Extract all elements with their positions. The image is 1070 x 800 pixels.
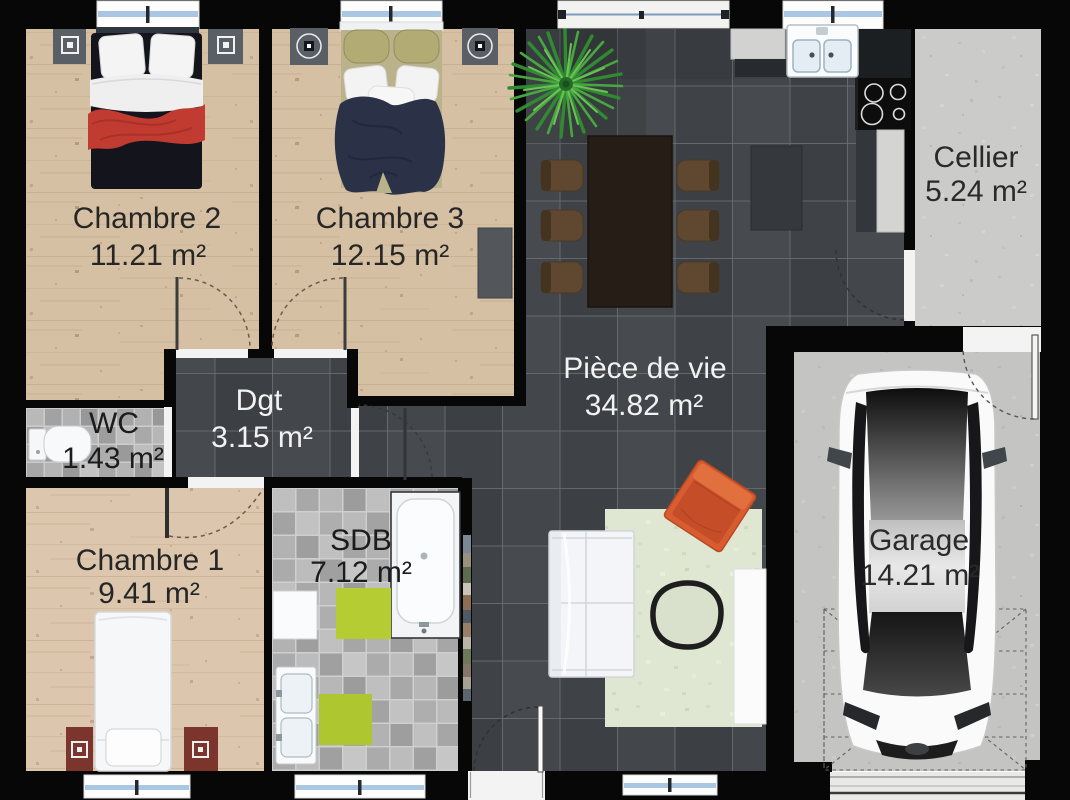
svg-text:Chambre 2: Chambre 2 bbox=[73, 202, 221, 235]
svg-text:34.82 m²: 34.82 m² bbox=[585, 389, 703, 422]
svg-text:11.21 m²: 11.21 m² bbox=[90, 239, 206, 272]
svg-text:Dgt: Dgt bbox=[236, 384, 283, 417]
svg-text:9.41 m²: 9.41 m² bbox=[98, 577, 200, 610]
svg-text:1.43 m²: 1.43 m² bbox=[62, 442, 164, 475]
svg-text:7.12 m²: 7.12 m² bbox=[310, 556, 412, 589]
svg-text:Chambre 3: Chambre 3 bbox=[316, 202, 464, 235]
svg-text:SDB: SDB bbox=[330, 524, 392, 557]
svg-text:12.15 m²: 12.15 m² bbox=[331, 239, 449, 272]
svg-text:Pièce de vie: Pièce de vie bbox=[563, 352, 726, 385]
svg-text:3.15 m²: 3.15 m² bbox=[211, 421, 313, 454]
svg-text:Chambre 1: Chambre 1 bbox=[76, 544, 224, 577]
svg-text:14.21 m²: 14.21 m² bbox=[861, 559, 979, 592]
svg-text:WC: WC bbox=[89, 407, 139, 440]
svg-text:Garage: Garage bbox=[869, 524, 969, 557]
svg-text:5.24 m²: 5.24 m² bbox=[925, 175, 1027, 208]
svg-text:Cellier: Cellier bbox=[933, 141, 1018, 174]
